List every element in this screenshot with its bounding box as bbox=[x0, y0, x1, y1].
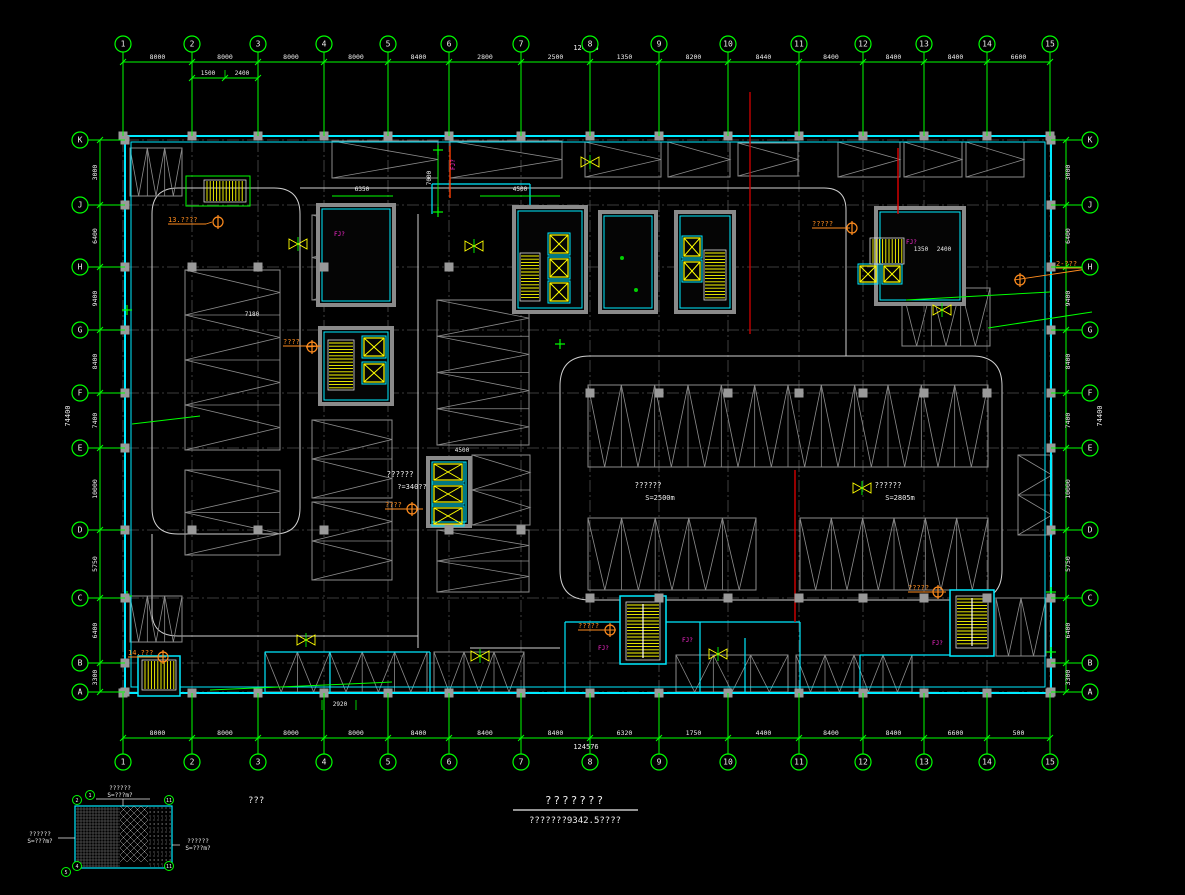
grid-bubble-label: E bbox=[1088, 444, 1093, 453]
parking-stall-group bbox=[996, 598, 1046, 656]
dim-top: 8000 bbox=[217, 53, 233, 61]
column bbox=[188, 526, 197, 535]
grid-bubble-label: K bbox=[1088, 136, 1093, 145]
column bbox=[724, 594, 733, 603]
grid-bubble-label: 1 bbox=[121, 40, 126, 49]
room-tag: FJ? bbox=[906, 239, 917, 246]
grid-bubble-label: 10 bbox=[723, 40, 733, 49]
column bbox=[254, 263, 263, 272]
dim-bottom: 1750 bbox=[686, 729, 702, 737]
grid-bubble: J bbox=[72, 197, 88, 213]
key-plan-bubble-label: 5 bbox=[64, 870, 67, 876]
dim-bottom: 8000 bbox=[348, 729, 364, 737]
parking-stall-group bbox=[588, 518, 756, 590]
grid-bubble: B bbox=[1082, 655, 1098, 671]
grid-bubble-label: C bbox=[1088, 594, 1093, 603]
grid-bubble: 9 bbox=[651, 36, 667, 52]
grid-bubble: C bbox=[72, 590, 88, 606]
dim-misc: 6350 bbox=[355, 186, 370, 193]
door-swing-symbol bbox=[289, 237, 307, 251]
grid-bubble-label: 11 bbox=[794, 758, 804, 767]
grid-bubble: 4 bbox=[316, 36, 332, 52]
grid-bubble-label: 15 bbox=[1045, 758, 1055, 767]
parking-stall-group bbox=[130, 596, 182, 642]
grid-bubble-label: 5 bbox=[386, 40, 391, 49]
grid-bubble-label: 14 bbox=[982, 40, 992, 49]
key-plan-layer: 21114511??????S=???m???????S=???m???????… bbox=[27, 785, 211, 877]
annotation-text: ???? bbox=[283, 338, 300, 346]
core-block bbox=[600, 212, 656, 312]
dim-left: 6400 bbox=[91, 228, 99, 244]
area-label: ?????? bbox=[634, 481, 661, 490]
grid-bubble: K bbox=[1082, 132, 1098, 148]
dim-left: 8400 bbox=[91, 354, 99, 370]
title-layer: ??????????????9342.5??????? bbox=[248, 794, 638, 826]
grid-bubble: G bbox=[1082, 322, 1098, 338]
parking-stall-group bbox=[668, 142, 730, 177]
column bbox=[859, 594, 868, 603]
column bbox=[655, 389, 664, 398]
grid-bubble: 8 bbox=[582, 36, 598, 52]
dim-left: 3300 bbox=[91, 670, 99, 686]
dim-top: 1350 bbox=[617, 53, 633, 61]
section-annotation: ????? bbox=[578, 622, 616, 637]
dim-top-sub: 2400 bbox=[235, 70, 250, 77]
grid-bubble: B bbox=[72, 655, 88, 671]
parking-stall-group bbox=[185, 270, 280, 450]
grid-bubble-label: 14 bbox=[982, 758, 992, 767]
dim-top: 8000 bbox=[283, 53, 299, 61]
door-swing-symbol bbox=[853, 481, 871, 495]
dim-misc: 7000 bbox=[426, 170, 433, 185]
grid-bubble: 5 bbox=[380, 36, 396, 52]
grid-bubble: F bbox=[1082, 385, 1098, 401]
parking-stall-group bbox=[185, 470, 280, 555]
column bbox=[859, 389, 868, 398]
grid-bubble-label: 15 bbox=[1045, 40, 1055, 49]
dim-left: 7400 bbox=[91, 413, 99, 429]
grid-bubble-label: 3 bbox=[256, 40, 261, 49]
grid-bubble: 1 bbox=[115, 754, 131, 770]
grid-bubble-label: 1 bbox=[121, 758, 126, 767]
area-label: ?????? bbox=[386, 470, 413, 479]
core-block bbox=[318, 205, 394, 305]
column bbox=[254, 526, 263, 535]
grid-bubble-label: D bbox=[1088, 526, 1093, 535]
dim-bottom: 8000 bbox=[217, 729, 233, 737]
dim-right-total: 74400 bbox=[1096, 405, 1104, 426]
key-plan-bubble-label: 1 bbox=[88, 793, 91, 799]
grid-bubble-label: 8 bbox=[588, 40, 593, 49]
grid-bubble: 15 bbox=[1042, 36, 1058, 52]
key-plan-bubble-label: 2 bbox=[75, 798, 78, 804]
grid-bubble: 6 bbox=[441, 36, 457, 52]
dim-bottom-total: 124576 bbox=[573, 743, 598, 751]
parking-stall-group bbox=[738, 143, 798, 176]
grid-bubble-label: D bbox=[78, 526, 83, 535]
grid-bubble: 7 bbox=[513, 36, 529, 52]
annotation-text: 13.???? bbox=[168, 216, 198, 224]
grid-bubble: D bbox=[72, 522, 88, 538]
annotation-text: ????? bbox=[578, 622, 599, 630]
grid-bubble: 15 bbox=[1042, 754, 1058, 770]
column bbox=[724, 389, 733, 398]
parking-stall-group bbox=[800, 518, 988, 590]
column bbox=[655, 594, 664, 603]
dim-left-total: 74400 bbox=[64, 405, 72, 426]
grid-bubble-label: 6 bbox=[447, 40, 452, 49]
grid-bubble-label: 13 bbox=[919, 758, 929, 767]
dim-left: 3000 bbox=[91, 165, 99, 181]
grid-bubble-label: 11 bbox=[794, 40, 804, 49]
grid-bubble: 14 bbox=[979, 754, 995, 770]
dim-bottom: 8000 bbox=[283, 729, 299, 737]
grid-bubble-label: 4 bbox=[322, 758, 327, 767]
parking-stall-group bbox=[265, 652, 427, 692]
grid-bubble: 12 bbox=[855, 754, 871, 770]
column bbox=[920, 389, 929, 398]
dim-top: 8400 bbox=[886, 53, 902, 61]
dim-top-sub: 1500 bbox=[201, 70, 216, 77]
column bbox=[320, 526, 329, 535]
door-swing-symbol bbox=[581, 155, 599, 169]
grid-bubble: 8 bbox=[582, 754, 598, 770]
dim-right: 10000 bbox=[1064, 479, 1072, 499]
dimensions-layer: 8000800080008000840028002500135082008440… bbox=[64, 44, 1104, 751]
grid-bubble: A bbox=[1082, 684, 1098, 700]
dim-right: 8400 bbox=[1064, 354, 1072, 370]
room-tag: FJ? bbox=[932, 640, 943, 647]
grid-bubble: 3 bbox=[250, 36, 266, 52]
dim-right: 7400 bbox=[1064, 413, 1072, 429]
grid-bubble-label: 13 bbox=[919, 40, 929, 49]
grid-bubble-label: 10 bbox=[723, 758, 733, 767]
grid-bubble: D bbox=[1082, 522, 1098, 538]
column bbox=[586, 389, 595, 398]
grid-bubble: 10 bbox=[720, 36, 736, 52]
key-plan-label: ?????? bbox=[109, 785, 131, 792]
dim-top: 8000 bbox=[348, 53, 364, 61]
grid-bubble: E bbox=[72, 440, 88, 456]
dim-bottom: 8400 bbox=[548, 729, 564, 737]
grid-bubble-label: E bbox=[78, 444, 83, 453]
grid-bubble: 9 bbox=[651, 754, 667, 770]
dim-top: 8400 bbox=[411, 53, 427, 61]
cores-layer bbox=[138, 176, 994, 696]
room-tag: FJ? bbox=[450, 159, 457, 170]
dim-bottom: 8400 bbox=[823, 729, 839, 737]
dim-top: 2500 bbox=[548, 53, 564, 61]
grid-bubble: 11 bbox=[791, 36, 807, 52]
dim-right: 6400 bbox=[1064, 228, 1072, 244]
dim-misc: 2400 bbox=[937, 246, 952, 253]
dim-bottom-sub: 2920 bbox=[333, 701, 348, 708]
key-plan-label: ?????? bbox=[187, 838, 209, 845]
stair-treads bbox=[204, 180, 246, 202]
grid-bubble-label: G bbox=[78, 326, 83, 335]
dim-top: 8440 bbox=[756, 53, 772, 61]
grid-bubble: H bbox=[72, 259, 88, 275]
parking-stall-group bbox=[676, 655, 788, 692]
dim-misc: 1350 bbox=[914, 246, 929, 253]
grid-bubble: 10 bbox=[720, 754, 736, 770]
dim-bottom: 6600 bbox=[948, 729, 964, 737]
grid-bubble: E bbox=[1082, 440, 1098, 456]
room-tag: FJ? bbox=[598, 645, 609, 652]
area-size-label: ?=340?? bbox=[397, 483, 427, 491]
grid-bubble-label: 9 bbox=[657, 40, 662, 49]
drawing-subtitle: ???????9342.5???? bbox=[529, 816, 621, 826]
grid-bubble: 1 bbox=[115, 36, 131, 52]
dim-misc: 4500 bbox=[455, 447, 470, 454]
column bbox=[445, 263, 454, 272]
grid-bubble: 2 bbox=[184, 754, 200, 770]
key-plan-label: S=???m? bbox=[107, 792, 133, 799]
dim-top: 6600 bbox=[1011, 53, 1027, 61]
column bbox=[320, 263, 329, 272]
grid-bubble: G bbox=[72, 322, 88, 338]
dim-bottom: 4400 bbox=[756, 729, 772, 737]
grid-bubble: K bbox=[72, 132, 88, 148]
grid-bubble-label: F bbox=[1088, 389, 1093, 398]
dim-bottom: 6320 bbox=[617, 729, 633, 737]
grid-bubble-label: 12 bbox=[858, 40, 868, 49]
grid-bubble-label: H bbox=[78, 263, 83, 272]
dim-bottom: 500 bbox=[1013, 729, 1025, 737]
drawing-note: ??? bbox=[248, 796, 264, 806]
grid-bubble: 5 bbox=[380, 754, 396, 770]
key-plan-label: S=???m? bbox=[27, 838, 53, 845]
section-annotation: ????? bbox=[812, 220, 857, 235]
parking-stall-group bbox=[904, 142, 962, 177]
dim-left: 6400 bbox=[91, 623, 99, 639]
grid-bubble-label: K bbox=[78, 136, 83, 145]
dim-left: 9400 bbox=[91, 291, 99, 307]
column bbox=[983, 594, 992, 603]
grid-bubble: 3 bbox=[250, 754, 266, 770]
annotation-text: ????? bbox=[812, 220, 833, 228]
grid-bubble: 14 bbox=[979, 36, 995, 52]
grid-bubble-label: B bbox=[78, 659, 83, 668]
key-plan-label: S=???m? bbox=[185, 845, 211, 852]
grid-bubble-label: 6 bbox=[447, 758, 452, 767]
grid-bubble: 11 bbox=[791, 754, 807, 770]
door-swing-symbol bbox=[471, 649, 489, 663]
grid-bubble: 13 bbox=[916, 754, 932, 770]
column bbox=[445, 526, 454, 535]
floor-plan-viewport[interactable]: 8000800080008000840028002500135082008440… bbox=[0, 0, 1185, 895]
parking-stall-group bbox=[838, 142, 900, 177]
grid-bubble: J bbox=[1082, 197, 1098, 213]
dim-misc: 4500 bbox=[513, 186, 528, 193]
grid-bubble-label: B bbox=[1088, 659, 1093, 668]
grid-bubble-label: 9 bbox=[657, 758, 662, 767]
column bbox=[795, 594, 804, 603]
drawing-title: ??????? bbox=[545, 794, 605, 807]
area-label: ?????? bbox=[874, 481, 901, 490]
dim-right: 3300 bbox=[1064, 670, 1072, 686]
dim-left: 10000 bbox=[91, 479, 99, 499]
dim-right: 3000 bbox=[1064, 165, 1072, 181]
grid-bubble-label: 7 bbox=[519, 40, 524, 49]
section-annotation: 13.???? bbox=[168, 215, 223, 229]
parking-stall-group bbox=[437, 300, 529, 445]
dim-misc: 7180 bbox=[245, 311, 260, 318]
grid-bubble-label: J bbox=[78, 201, 83, 210]
grid-bubble-label: 2 bbox=[190, 758, 195, 767]
key-plan-bubble-label: 11 bbox=[166, 798, 172, 804]
dim-right: 9400 bbox=[1064, 291, 1072, 307]
parking-stall-group bbox=[585, 142, 661, 177]
key-plan-label: ?????? bbox=[29, 831, 51, 838]
grid-bubble-label: 7 bbox=[519, 758, 524, 767]
parking-stall-group bbox=[450, 141, 562, 178]
annotation-text: ????? bbox=[908, 584, 929, 592]
parking-stall-group bbox=[966, 142, 1024, 177]
parking-stall-group bbox=[130, 148, 182, 196]
annotation-text: ???? bbox=[385, 501, 402, 509]
annotation-text: 14.??? bbox=[128, 649, 153, 657]
grid-bubble-label: 2 bbox=[190, 40, 195, 49]
grid-bubble-label: 12 bbox=[858, 758, 868, 767]
grid-bubble: 2 bbox=[184, 36, 200, 52]
grid-bubble: H bbox=[1082, 259, 1098, 275]
door-swing-symbol bbox=[465, 239, 483, 253]
column bbox=[188, 263, 197, 272]
grid-bubble-label: A bbox=[1088, 688, 1093, 697]
dim-right: 6400 bbox=[1064, 623, 1072, 639]
column bbox=[920, 594, 929, 603]
grid-bubble: 6 bbox=[441, 754, 457, 770]
dim-left: 5750 bbox=[91, 556, 99, 572]
grid-bubble: 7 bbox=[513, 754, 529, 770]
cad-stage: 8000800080008000840028002500135082008440… bbox=[0, 0, 1185, 895]
area-size-label: S=2500m bbox=[645, 494, 675, 502]
grid-bubble: 4 bbox=[316, 754, 332, 770]
grid-bubble-label: C bbox=[78, 594, 83, 603]
grid-bubble-label: A bbox=[78, 688, 83, 697]
dim-top: 8000 bbox=[150, 53, 166, 61]
dim-top: 8400 bbox=[823, 53, 839, 61]
parking-stall-group bbox=[437, 530, 529, 592]
grid-bubble-label: 4 bbox=[322, 40, 327, 49]
room-tag: FJ? bbox=[682, 637, 693, 644]
grid-bubble: 13 bbox=[916, 36, 932, 52]
dim-bottom: 8400 bbox=[886, 729, 902, 737]
grid-bubble: C bbox=[1082, 590, 1098, 606]
grid-bubble-label: H bbox=[1088, 263, 1093, 272]
grid-bubble-label: G bbox=[1088, 326, 1093, 335]
grid-bubble: F bbox=[72, 385, 88, 401]
dim-bottom: 8000 bbox=[150, 729, 166, 737]
grid-bubble-label: J bbox=[1088, 201, 1093, 210]
key-plan-bubble-label: 11 bbox=[166, 864, 172, 870]
grid-bubble-label: 8 bbox=[588, 758, 593, 767]
grid-bubble-label: F bbox=[78, 389, 83, 398]
room-tag: FJ? bbox=[334, 231, 345, 238]
section-annotation: ???? bbox=[385, 501, 423, 516]
area-size-label: S=2805m bbox=[885, 494, 915, 502]
parking-stall-group bbox=[434, 652, 524, 692]
dim-bottom: 8400 bbox=[411, 729, 427, 737]
grid-bubble-label: 5 bbox=[386, 758, 391, 767]
parking-stall-group bbox=[332, 141, 438, 178]
column bbox=[983, 389, 992, 398]
dim-top: 8200 bbox=[686, 53, 702, 61]
dim-top: 8400 bbox=[948, 53, 964, 61]
parking-stall-group bbox=[796, 655, 912, 692]
key-plan-bubble-label: 4 bbox=[75, 864, 78, 870]
column bbox=[795, 389, 804, 398]
grid-bubble-label: 3 bbox=[256, 758, 261, 767]
parking-stall-group bbox=[1018, 455, 1052, 535]
column bbox=[517, 526, 526, 535]
dim-bottom: 8400 bbox=[477, 729, 493, 737]
section-annotation: ???? bbox=[283, 338, 321, 354]
dim-top: 2800 bbox=[477, 53, 493, 61]
column bbox=[586, 594, 595, 603]
grid-bubble: 12 bbox=[855, 36, 871, 52]
grid-bubble: A bbox=[72, 684, 88, 700]
door-swing-symbol bbox=[297, 633, 315, 647]
dim-right: 5750 bbox=[1064, 556, 1072, 572]
